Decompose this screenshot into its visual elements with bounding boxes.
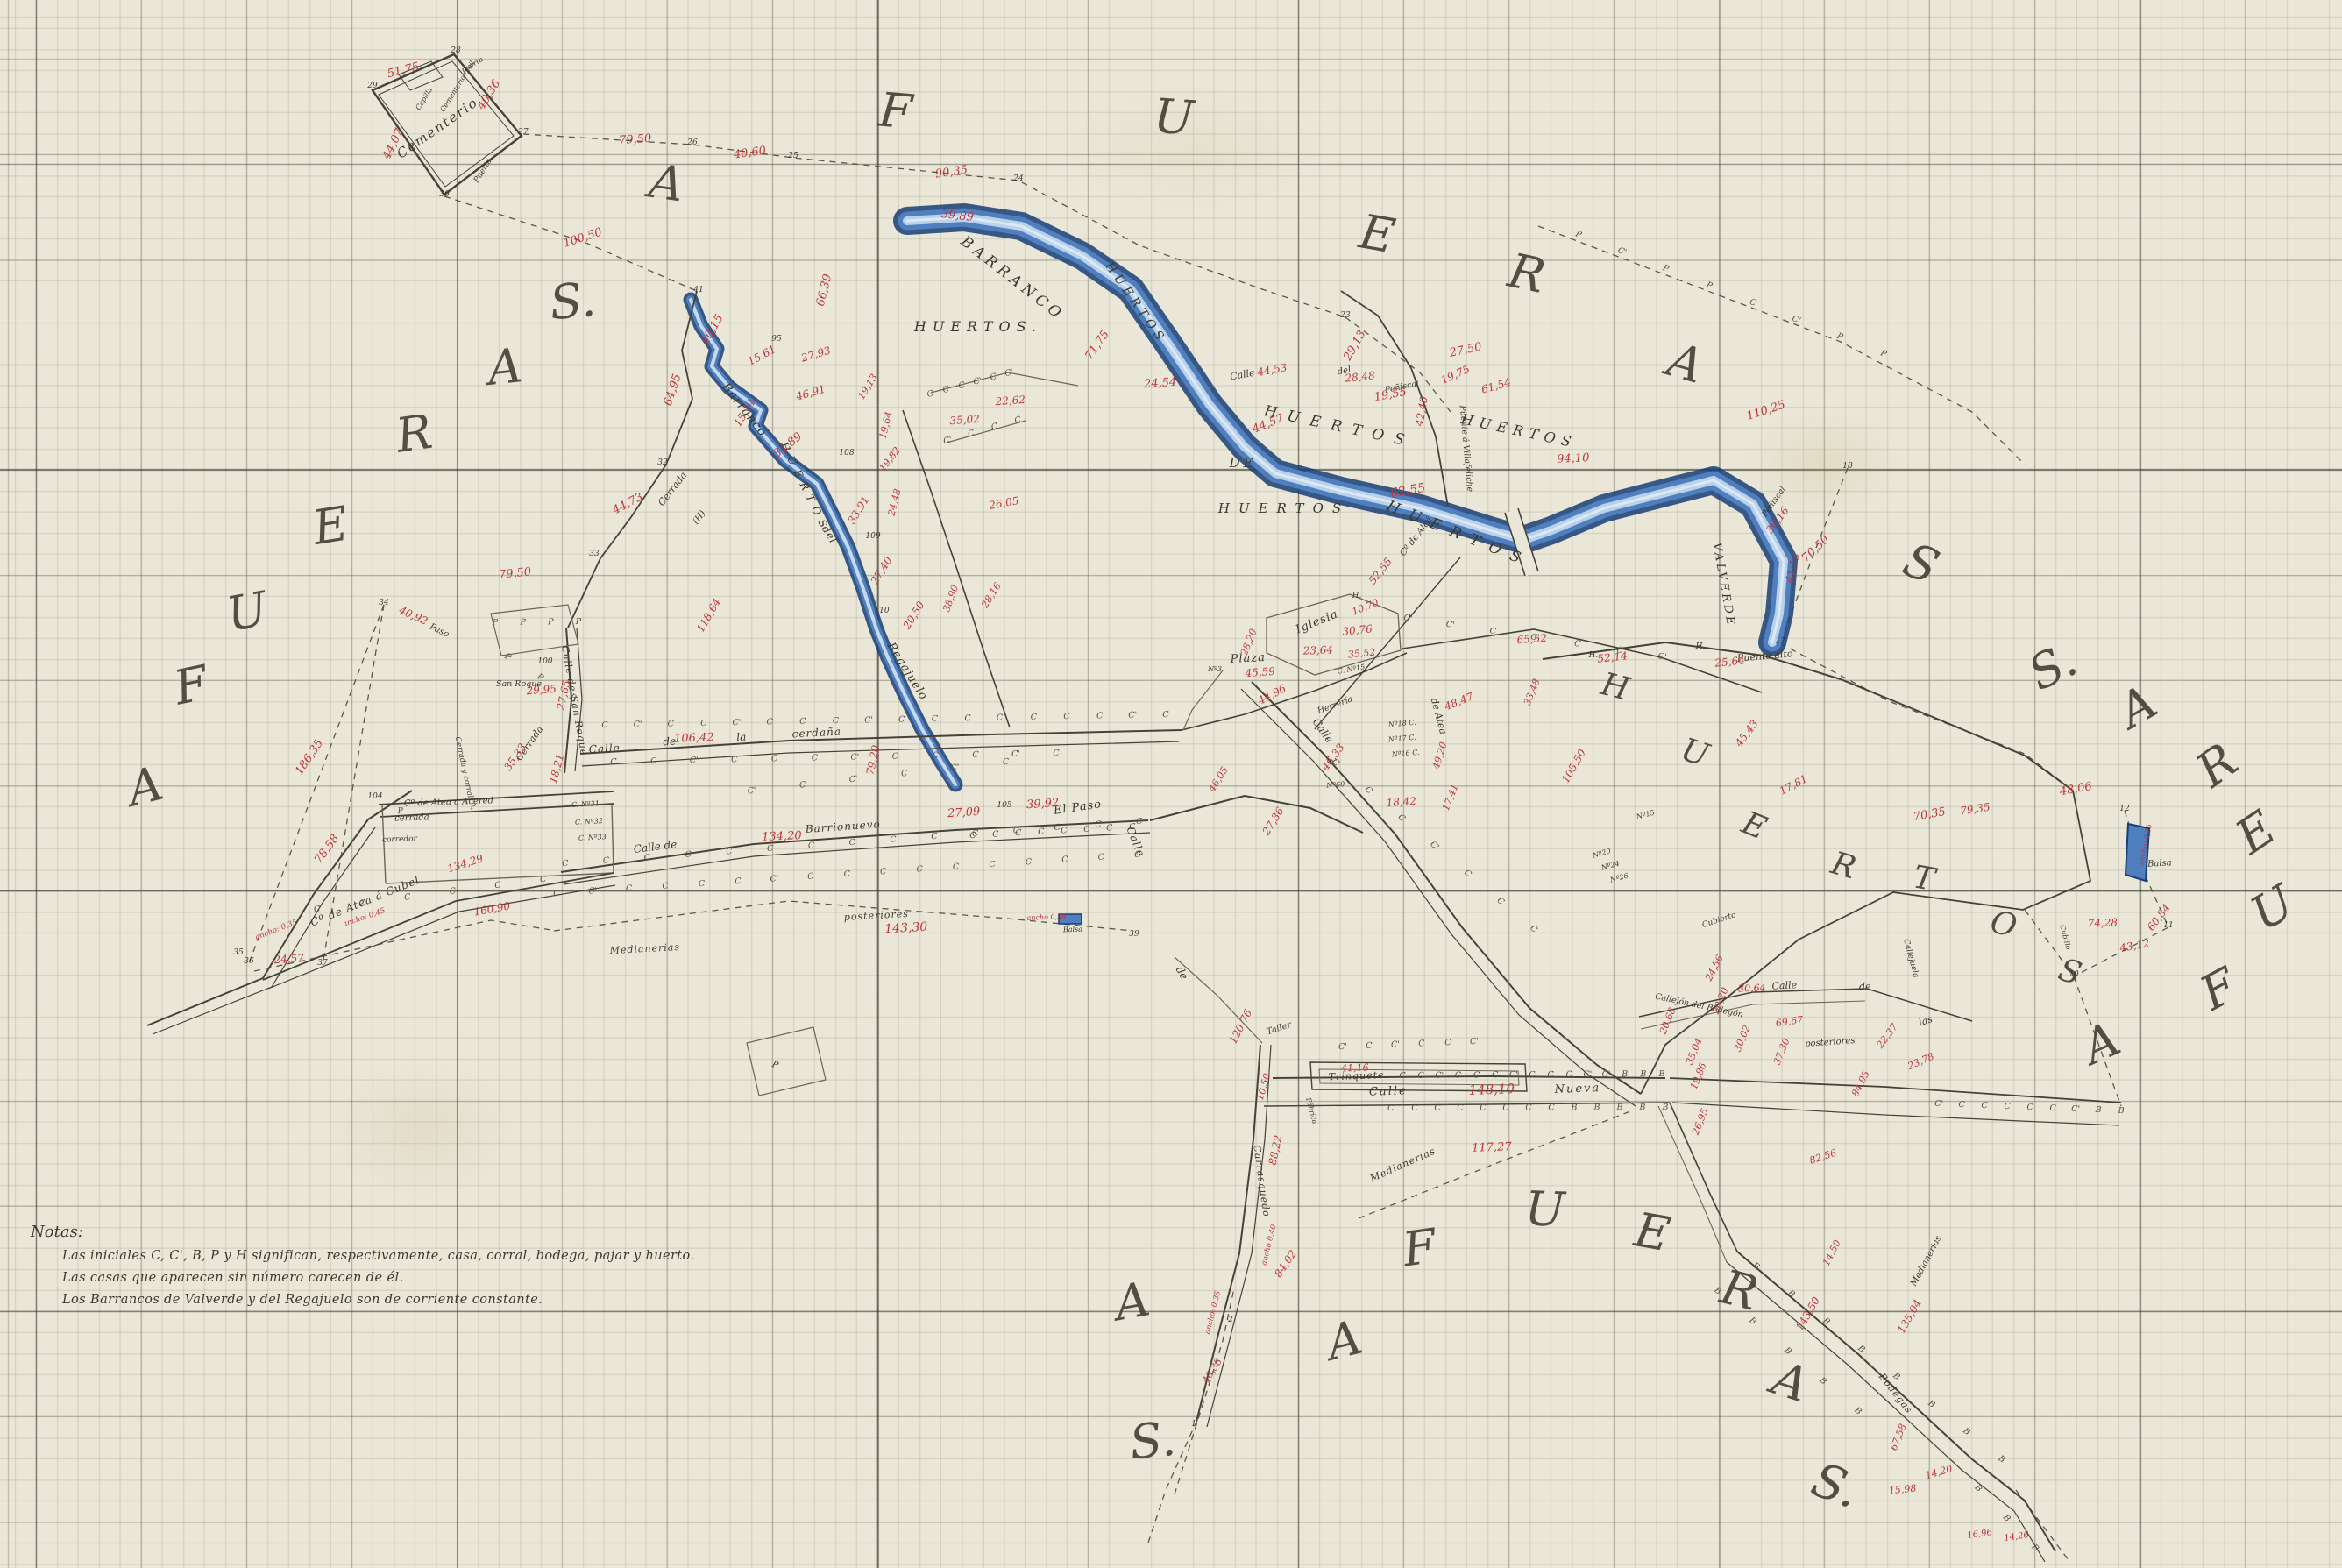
house-letter: C <box>1129 822 1137 832</box>
measurement-label: 43,12 <box>2118 937 2150 954</box>
big-letter: U <box>2241 874 2304 942</box>
map-label: las <box>1917 1013 1934 1028</box>
vertex-number: 11 <box>2163 921 2173 930</box>
house-letter: C <box>404 892 412 903</box>
house-letter: P <box>1660 263 1670 274</box>
house-letter: C' <box>1791 314 1802 326</box>
big-letter: A <box>642 153 687 213</box>
measurement-label: 120,76 <box>1227 1007 1255 1046</box>
map-label: Cerrada <box>656 470 689 508</box>
house-letter: C <box>1480 1103 1487 1113</box>
map-label: Iglesia <box>1293 607 1340 636</box>
measurement-label: 35,02 <box>949 413 980 427</box>
measurement-label: 24,54 <box>1143 376 1177 392</box>
house-letter: C <box>833 716 840 726</box>
measurement-label: 70,50 <box>1799 533 1832 564</box>
measurement-label: 18,21 <box>547 753 566 785</box>
house-letter: B <box>1570 1103 1577 1112</box>
house-letter: C' <box>1403 613 1413 623</box>
measurement-label: 94,10 <box>1557 451 1590 466</box>
map-sheet: AFUERASAFUERAS.AFUERAS.AFUERAS.AS.HUERTO… <box>0 0 2342 1568</box>
house-letter: C <box>1013 415 1023 426</box>
house-letter: C <box>1417 1071 1424 1081</box>
house-letter: C' <box>1428 840 1441 853</box>
map-label: Taller <box>1266 1020 1294 1038</box>
house-letter: C' <box>588 886 598 897</box>
map-label: de <box>1174 964 1191 982</box>
map-label: Balsa <box>2147 858 2172 869</box>
house-letter: C <box>313 904 321 914</box>
map-label: Balsa <box>1062 926 1083 934</box>
house-letter: C <box>1748 297 1757 309</box>
house-letter: C <box>1495 896 1507 908</box>
house-letter: C <box>1457 1103 1464 1113</box>
house-letter: C <box>767 844 775 855</box>
boundary-dashed-lines <box>249 134 2168 1560</box>
big-letter: A <box>480 337 524 396</box>
house-letter: C <box>603 855 611 866</box>
measurement-label: 33,48 <box>1522 678 1543 707</box>
house-letter: C' <box>1387 1103 1396 1113</box>
notes-line: Las iniciales C, C', B, P y H significan… <box>62 1249 694 1263</box>
house-letter: C' <box>1004 367 1014 379</box>
house-letter: C' <box>1509 1070 1518 1080</box>
map-label: H. <box>1352 592 1362 600</box>
map-label: Callejuela <box>1901 938 1920 979</box>
map-label: posteriores <box>1805 1036 1856 1049</box>
map-label: Calle <box>1310 716 1336 746</box>
measurement-label: 15,98 <box>1888 1482 1917 1496</box>
house-letter: C <box>926 388 935 400</box>
house-letter: C' <box>1391 1039 1400 1049</box>
map-label: P. <box>770 1060 780 1071</box>
house-letter: C' <box>972 376 983 387</box>
house-letter: C <box>1106 823 1114 833</box>
measurement-label: 24,48 <box>885 487 903 518</box>
measurement-label: 17,81 <box>1778 772 1810 797</box>
measurement-label: 20,50 <box>900 599 927 632</box>
house-letter: C <box>1002 757 1010 768</box>
measurement-label: 69,67 <box>1775 1014 1804 1029</box>
measurement-label: 66,39 <box>814 273 835 308</box>
measurement-label: 19,55 <box>1373 386 1408 404</box>
house-letter: C <box>1095 819 1103 830</box>
vertex-number: 36 <box>244 957 254 966</box>
house-letter: C <box>972 750 979 760</box>
house-letter: B <box>1615 1103 1622 1112</box>
measurement-label: 79,20 <box>864 744 883 777</box>
house-letter: C <box>1547 1070 1554 1080</box>
house-letter: C' <box>732 718 741 727</box>
map-label: Nº24 <box>1600 860 1621 872</box>
measurement-label: 106,42 <box>674 731 714 746</box>
house-letter: C' <box>1602 1069 1611 1079</box>
measurement-label: 48,47 <box>1442 690 1475 713</box>
measurement-label: 23,78 <box>1906 1050 1936 1072</box>
big-letter: A <box>1106 1271 1153 1332</box>
house-letter: B <box>1961 1426 1972 1438</box>
measurement-label: 143,50 <box>1793 1295 1822 1333</box>
house-letter: C <box>2026 1103 2033 1112</box>
big-letter: R <box>392 404 436 464</box>
house-letter: C' <box>2071 1104 2080 1114</box>
map-label: Calle <box>1229 367 1256 383</box>
house-letter: C <box>1031 713 1038 722</box>
house-letter: B <box>1972 1482 1984 1494</box>
measurement-label: 40,38 <box>1200 1356 1224 1386</box>
house-letter: P <box>469 802 477 812</box>
house-letter: C <box>2049 1103 2056 1113</box>
big-letter: F <box>876 82 916 139</box>
house-letter: B <box>1996 1453 2007 1465</box>
house-letter: C <box>2004 1102 2011 1111</box>
vertex-number: 23 <box>1339 311 1351 320</box>
house-letter: C <box>989 860 997 870</box>
measurement-label: 30,76 <box>1342 622 1373 638</box>
vertex-number: 34 <box>379 599 389 607</box>
measurement-label: 35,04 <box>1684 1037 1705 1067</box>
house-letter: C <box>1525 1103 1532 1112</box>
map-label: Capilla <box>415 86 435 111</box>
measurement-label: 29,13 <box>1341 328 1369 364</box>
house-letter: C <box>1162 710 1169 720</box>
measurement-label: 79,50 <box>498 565 532 582</box>
house-letter: C <box>1053 749 1060 758</box>
map-label: Cerrada y corral <box>453 736 475 799</box>
measurement-label: 67,58 <box>1888 1423 1909 1452</box>
house-letter: P <box>519 618 526 628</box>
map-label: HUERTOS <box>1102 259 1169 346</box>
measurement-label: 40,92 <box>396 604 429 628</box>
measurement-label: 17,41 <box>1440 783 1461 812</box>
house-letter: B <box>1820 1316 1832 1328</box>
map-label: Nº18 C. <box>1387 719 1417 729</box>
big-letter: A <box>1316 1309 1367 1373</box>
big-letter: E <box>1629 1202 1674 1262</box>
measurement-label: 64,95 <box>662 372 685 408</box>
measurement-label: 25,64 <box>1714 654 1746 670</box>
measurement-label: 40,60 <box>732 145 767 162</box>
house-letter: B <box>2094 1105 2101 1115</box>
big-letter: A <box>2070 1011 2128 1076</box>
map-label: VALVERDE <box>1710 542 1738 628</box>
house-letter: B <box>1638 1103 1645 1112</box>
map-label: Nº17 C. <box>1387 734 1417 744</box>
house-letter: C <box>812 753 819 763</box>
measurement-label: 30,64 <box>1738 982 1766 994</box>
measurement-label: 100,50 <box>562 226 604 251</box>
house-letter: C' <box>1583 1070 1592 1080</box>
big-letter: U <box>1524 1181 1567 1238</box>
house-letter: C <box>916 864 924 875</box>
house-letter: C <box>610 757 617 767</box>
house-letter: C' <box>1530 632 1540 642</box>
house-letter: C <box>1434 1103 1441 1113</box>
vertex-number: 27 <box>517 128 529 137</box>
vertex-number: 2 <box>1227 1316 1233 1324</box>
house-letter: C <box>969 831 977 841</box>
house-letter: C' <box>942 435 954 446</box>
vertex-number: 29 <box>366 82 378 90</box>
cadastral-map-drawing: AFUERASAFUERAS.AFUERAS.AFUERAS.AS.HUERTO… <box>0 0 2342 1568</box>
house-letter: C <box>807 841 815 851</box>
house-letter: C <box>668 720 675 729</box>
measurement-label: 41,16 <box>1340 1061 1369 1074</box>
house-letter: C <box>1399 1071 1406 1081</box>
measurement-label: 52,14 <box>1597 649 1629 665</box>
measurement-label: 134,20 <box>762 829 802 844</box>
house-letter: C' <box>1445 620 1455 630</box>
measurement-label: 71,75 <box>1082 328 1112 362</box>
vertex-number: 10 <box>2069 970 2079 979</box>
house-letter: C <box>731 755 738 764</box>
vertex-number: 26 <box>686 138 698 147</box>
measurement-label: 135,04 <box>1895 1297 1924 1335</box>
measurement-label: 90,35 <box>934 164 969 181</box>
house-letter: C <box>843 869 851 880</box>
house-letter: C <box>1026 857 1033 868</box>
house-letter: C <box>932 714 939 724</box>
house-letter: C <box>1455 1071 1462 1081</box>
big-letter: U <box>1677 732 1714 775</box>
vertex-number: 37 <box>317 959 328 968</box>
map-label: El Paso <box>1052 798 1103 818</box>
map-label: H. <box>1695 642 1706 651</box>
house-letter: C <box>1981 1101 1988 1110</box>
big-letter: R <box>2185 733 2247 798</box>
big-letter: S. <box>1805 1451 1867 1519</box>
measurement-label: 74,28 <box>2087 916 2118 929</box>
measurement-label: 29,95 <box>525 683 557 697</box>
house-letter: C <box>1063 712 1070 721</box>
house-letter: C' <box>1011 749 1020 759</box>
house-letter: B <box>1785 1288 1797 1300</box>
vertex-number: 32 <box>657 458 668 467</box>
measurement-label: 117,27 <box>1472 1140 1513 1155</box>
house-letter: P <box>575 617 582 627</box>
house-letter: C <box>1083 825 1091 834</box>
measurement-label: 24,57 <box>273 952 305 966</box>
big-letter: A <box>1657 330 1710 394</box>
big-letter: T <box>1911 859 1941 898</box>
measurement-label: 52,55 <box>1366 556 1395 587</box>
house-letter: B <box>2000 1512 2012 1523</box>
map-label: HUERTOS <box>1217 500 1350 516</box>
big-letter: F <box>168 655 215 716</box>
map-label: Nº16 C. <box>1391 749 1421 759</box>
vertex-number: 33 <box>589 550 600 558</box>
measurement-label: 18,42 <box>1386 795 1416 809</box>
vertex-number: 109 <box>865 532 880 541</box>
measurement-label: 44,53 <box>1255 361 1288 379</box>
measurement-label: 27,40 <box>868 554 895 587</box>
house-letter: C' <box>1657 651 1667 662</box>
house-letter: C <box>880 867 888 877</box>
measurement-label: 22,62 <box>994 394 1026 408</box>
measurement-label: 148,10 <box>1468 1081 1515 1098</box>
house-letter: B <box>1852 1405 1863 1417</box>
house-letter: C <box>1061 855 1069 865</box>
vertex-number: 104 <box>367 792 382 801</box>
big-letter: U <box>1152 89 1196 146</box>
house-letter: C <box>957 380 967 392</box>
big-letter: A <box>2105 674 2167 741</box>
house-letter: C <box>1418 1039 1425 1048</box>
house-letter: C <box>1444 1038 1451 1047</box>
measurement-label: 79,50 <box>619 132 652 148</box>
house-letter: C <box>1502 1103 1509 1113</box>
house-letter: C <box>685 849 692 860</box>
big-letter: A <box>117 756 168 819</box>
house-letter: C' <box>747 785 756 796</box>
house-letter: C <box>562 859 570 869</box>
measurement-label: 134,29 <box>446 852 486 875</box>
map-label: Paso <box>427 621 451 640</box>
map-label: la <box>736 731 747 744</box>
house-letter: C <box>1492 1070 1499 1080</box>
house-letter: C <box>1061 826 1068 835</box>
vertex-number: 100 <box>537 657 552 666</box>
house-letter: C <box>1566 1070 1573 1080</box>
measurement-label: 44,96 <box>1255 682 1288 707</box>
house-letter: C <box>1958 1100 1965 1110</box>
map-label: Calle <box>1771 979 1798 992</box>
house-letter: P <box>1704 280 1714 291</box>
measurement-label: 19,64 <box>876 410 894 440</box>
house-letter: C <box>932 751 939 761</box>
big-letter: E <box>1354 203 1399 264</box>
map-label: cerdaña <box>791 726 841 741</box>
house-letter: C <box>953 862 961 872</box>
house-letter: C <box>1529 1070 1536 1080</box>
house-letter: P <box>1878 348 1888 359</box>
measurement-label: 160,90 <box>472 899 511 918</box>
measurement-label: 39,92 <box>1026 797 1060 812</box>
house-letter: B <box>1657 1069 1664 1079</box>
measurement-label: 70,35 <box>1913 805 1947 824</box>
map-label: Nueva <box>1553 1082 1600 1096</box>
measurement-label: 38,90 <box>940 584 961 614</box>
house-letter: C <box>494 880 502 890</box>
map-label: posteriores <box>843 908 909 923</box>
measurement-label: 19,13 <box>855 372 880 401</box>
measurement-label: 28,48 <box>1344 369 1376 385</box>
house-letter: C <box>964 713 971 723</box>
measurement-label: 118,64 <box>694 596 723 634</box>
measurement-label: 61,54 <box>1480 376 1512 396</box>
map-label: Calle de <box>633 838 678 855</box>
big-letter: R <box>1502 243 1550 304</box>
vertex-number: 110 <box>874 607 889 615</box>
measurement-label: 28,16 <box>979 580 1004 610</box>
house-letter: B <box>1817 1375 1828 1387</box>
house-letter: C <box>967 428 976 439</box>
house-letter: C <box>798 780 806 791</box>
map-label: HUERTOS <box>1458 410 1579 451</box>
house-letter: P <box>492 618 499 628</box>
vertex-number: 17 <box>1775 637 1785 646</box>
map-label: Medianerias <box>1909 1234 1944 1288</box>
map-label: HUERTOS <box>1261 402 1416 451</box>
map-label: Herrería <box>1316 694 1354 716</box>
house-letter: C <box>1396 812 1408 825</box>
map-label: Nº15 <box>1635 809 1656 821</box>
map-label: Nº20 <box>1591 848 1612 860</box>
house-letter: C' <box>1128 711 1137 720</box>
measurement-label: 27,93 <box>798 344 832 365</box>
house-letter: B <box>1661 1103 1668 1112</box>
measurement-label: 88,22 <box>1267 1134 1285 1167</box>
vertex-number: 39 <box>1129 930 1139 939</box>
house-letter: C <box>735 876 742 887</box>
vertex-number: 18 <box>1842 462 1853 471</box>
big-letter: S. <box>1127 1411 1179 1471</box>
measurement-label: 27,50 <box>1448 340 1484 360</box>
house-letter: C <box>1462 868 1473 880</box>
house-letter: C <box>1548 1103 1555 1112</box>
map-label: Cº de Atea á Acered <box>404 796 493 809</box>
measurement-label: 33,91 <box>846 494 872 527</box>
map-label: Medianerias <box>608 941 680 956</box>
measurement-label: 110,25 <box>1745 399 1787 423</box>
measurement-label: 24,56 <box>1702 953 1725 983</box>
house-letter: C <box>941 384 951 395</box>
house-letter: C' <box>848 774 858 784</box>
big-letter: E <box>1736 805 1772 847</box>
house-letter: C <box>601 720 608 730</box>
measurement-label: 42,40 <box>1413 395 1430 429</box>
big-letter: A <box>1762 1349 1815 1414</box>
measurement-label: 79,35 <box>1959 801 1991 818</box>
measurement-label: 46,91 <box>793 383 827 403</box>
house-letter: C <box>1411 1103 1418 1113</box>
house-letter: B <box>1926 1398 1937 1410</box>
house-letter: C' <box>950 763 960 773</box>
house-letter: C <box>992 829 1000 839</box>
map-label: Cementerio <box>394 94 481 161</box>
measurement-label: 44,73 <box>610 491 646 518</box>
map-label: C. Nº32 <box>575 817 603 827</box>
house-letter: P <box>396 806 404 816</box>
map-label: Cubillo <box>2058 924 2072 950</box>
house-letter: C <box>1528 924 1539 936</box>
house-letter: C' <box>864 715 873 725</box>
big-letter: O <box>1987 904 2021 945</box>
vertex-number: 41 <box>692 286 703 294</box>
measurement-label: ancho 0,40 <box>1260 1224 1278 1266</box>
house-letter: C <box>1366 1041 1373 1051</box>
measurement-label: 84,95 <box>1849 1068 1872 1098</box>
big-letter: S. <box>548 272 599 330</box>
house-letter: C <box>990 422 1000 433</box>
big-letter: F <box>2190 956 2248 1022</box>
house-letter: C' <box>1435 1071 1444 1081</box>
vertex-number: 28 <box>450 46 461 55</box>
map-label: Cubierto <box>1701 911 1738 930</box>
map-label: de <box>1859 981 1872 993</box>
vertex-number: 1 <box>1191 1420 1196 1429</box>
measurement-label: ancho 0,38 <box>1026 912 1066 922</box>
barranco-del-regajuelo <box>691 300 955 784</box>
big-letter: R <box>1827 845 1860 886</box>
measurement-label: 26,05 <box>987 494 1019 512</box>
measurement-label: 45,43 <box>1732 717 1761 749</box>
big-letter: S <box>1896 532 1947 595</box>
measurement-label: 27,36 <box>1260 805 1287 838</box>
house-letter: C' <box>634 720 642 729</box>
house-letter: P <box>1573 229 1583 240</box>
measurement-label: 82,56 <box>1808 1147 1838 1167</box>
